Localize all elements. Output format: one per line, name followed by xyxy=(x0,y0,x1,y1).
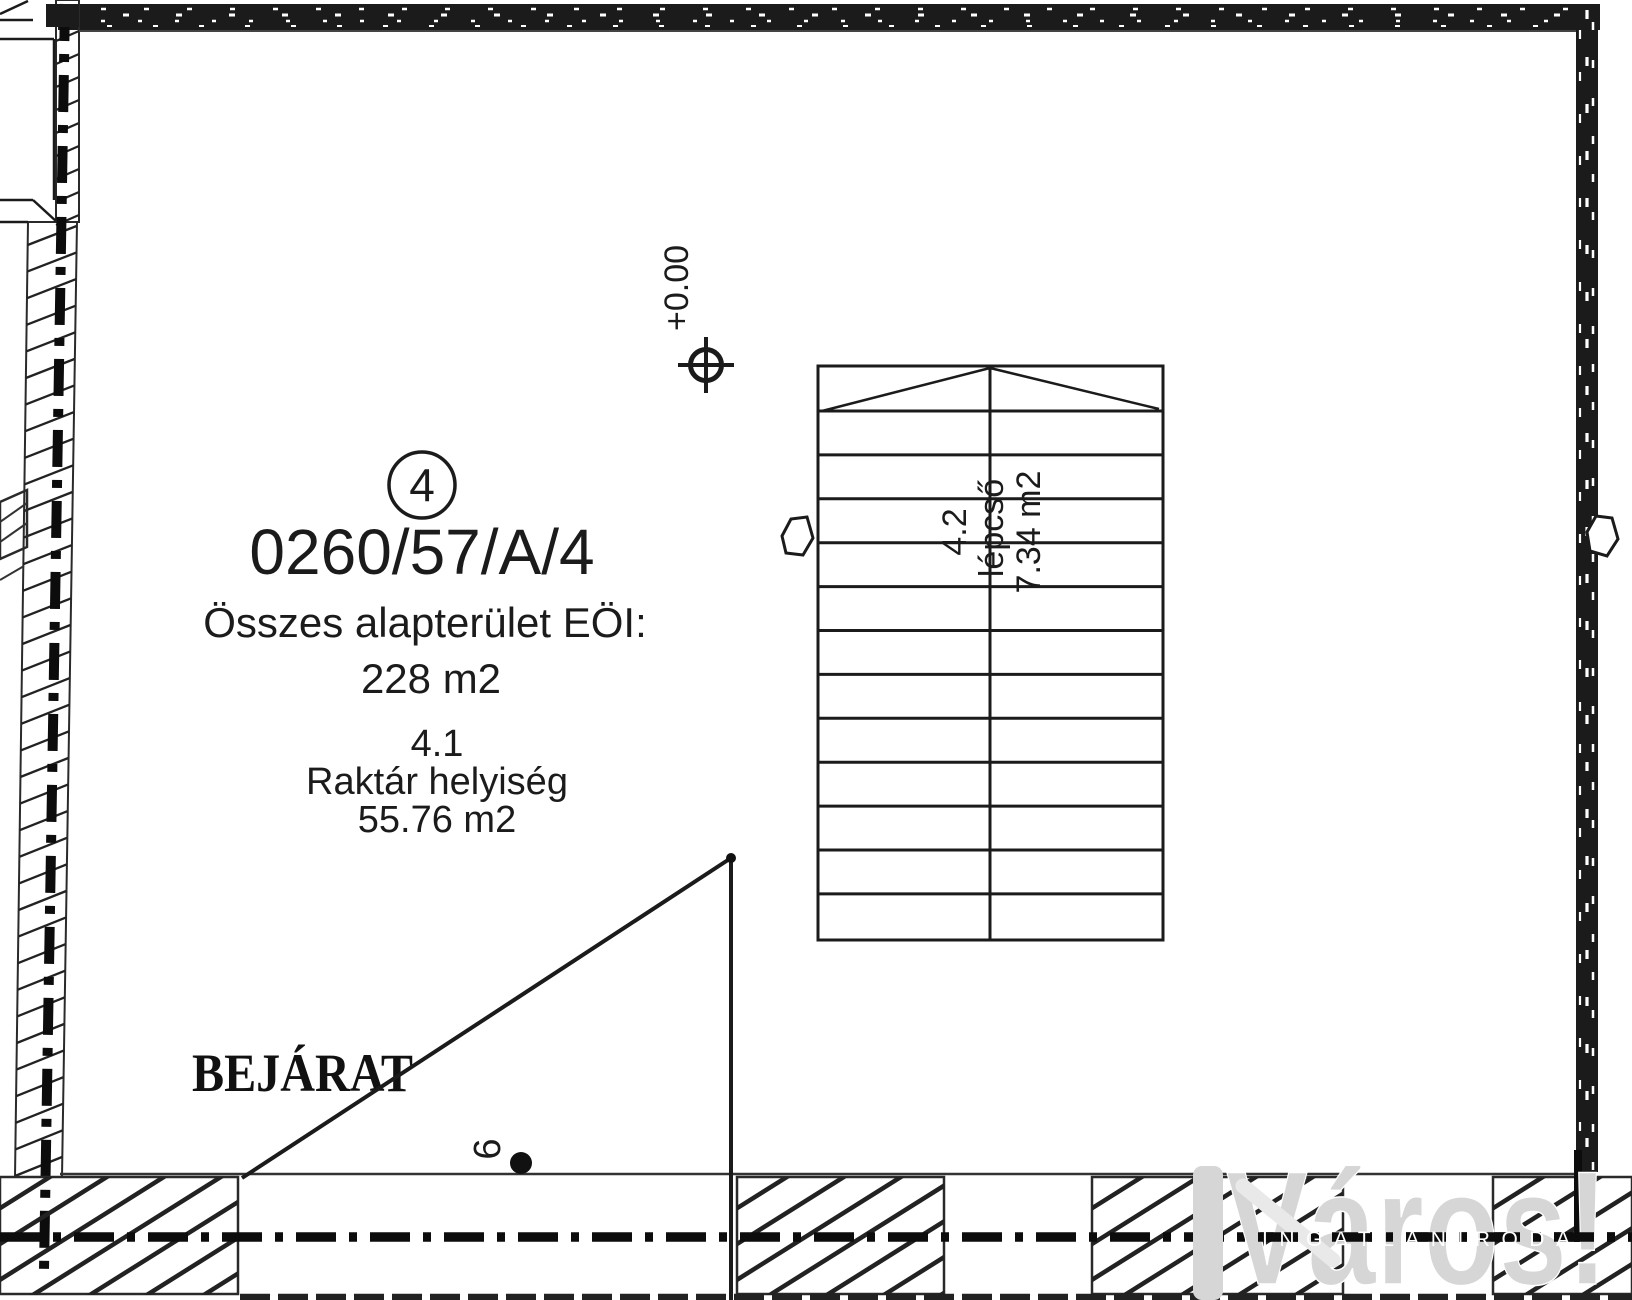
svg-text:4.1: 4.1 xyxy=(411,723,464,765)
svg-text:BEJÁRAT: BEJÁRAT xyxy=(192,1043,413,1103)
svg-text:+0.00: +0.00 xyxy=(658,245,696,331)
svg-text:Raktár helyiség: Raktár helyiség xyxy=(306,761,568,803)
svg-text:Összes alapterület EÖI:: Összes alapterület EÖI: xyxy=(203,599,647,646)
svg-text:4.2: 4.2 xyxy=(936,508,974,555)
svg-text:INGATLANIRODA: INGATLANIRODA xyxy=(1262,1228,1581,1251)
svg-text:lépcső: lépcső xyxy=(973,479,1011,577)
svg-text:228 m2: 228 m2 xyxy=(361,655,501,702)
svg-text:0260/57/A/4: 0260/57/A/4 xyxy=(249,516,594,588)
svg-text:6: 6 xyxy=(467,1138,509,1159)
svg-text:7.34 m2: 7.34 m2 xyxy=(1010,471,1048,594)
svg-text:55.76 m2: 55.76 m2 xyxy=(358,799,516,841)
svg-text:4: 4 xyxy=(409,459,435,511)
